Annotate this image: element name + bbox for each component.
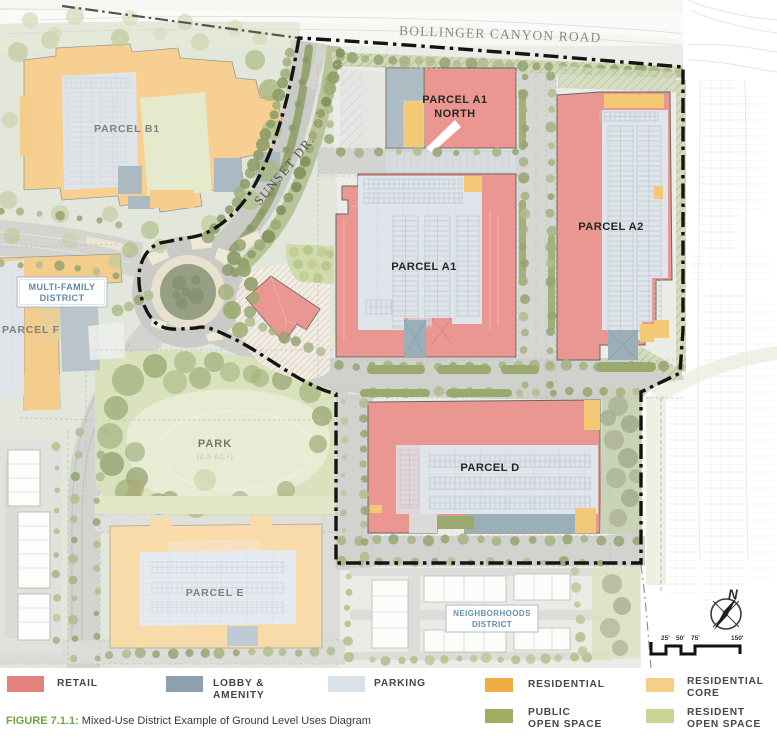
svg-text:PARCEL A2: PARCEL A2 xyxy=(578,221,644,233)
svg-text:PARK: PARK xyxy=(198,438,232,450)
svg-text:N: N xyxy=(728,587,738,602)
svg-text:25': 25' xyxy=(661,635,670,642)
svg-text:PARCEL E: PARCEL E xyxy=(186,587,245,599)
svg-text:PARCEL A1: PARCEL A1 xyxy=(422,94,487,106)
svg-text:50': 50' xyxy=(676,635,685,642)
svg-text:75': 75' xyxy=(691,635,700,642)
svg-text:PARCEL D: PARCEL D xyxy=(460,462,519,474)
svg-text:150': 150' xyxy=(731,635,744,642)
svg-text:(2.5 AC+): (2.5 AC+) xyxy=(197,452,234,461)
svg-text:PARCEL B1: PARCEL B1 xyxy=(94,123,160,135)
svg-text:NORTH: NORTH xyxy=(434,108,475,120)
svg-text:PARCEL A1: PARCEL A1 xyxy=(391,261,457,273)
svg-text:PARCEL F: PARCEL F xyxy=(2,324,60,336)
